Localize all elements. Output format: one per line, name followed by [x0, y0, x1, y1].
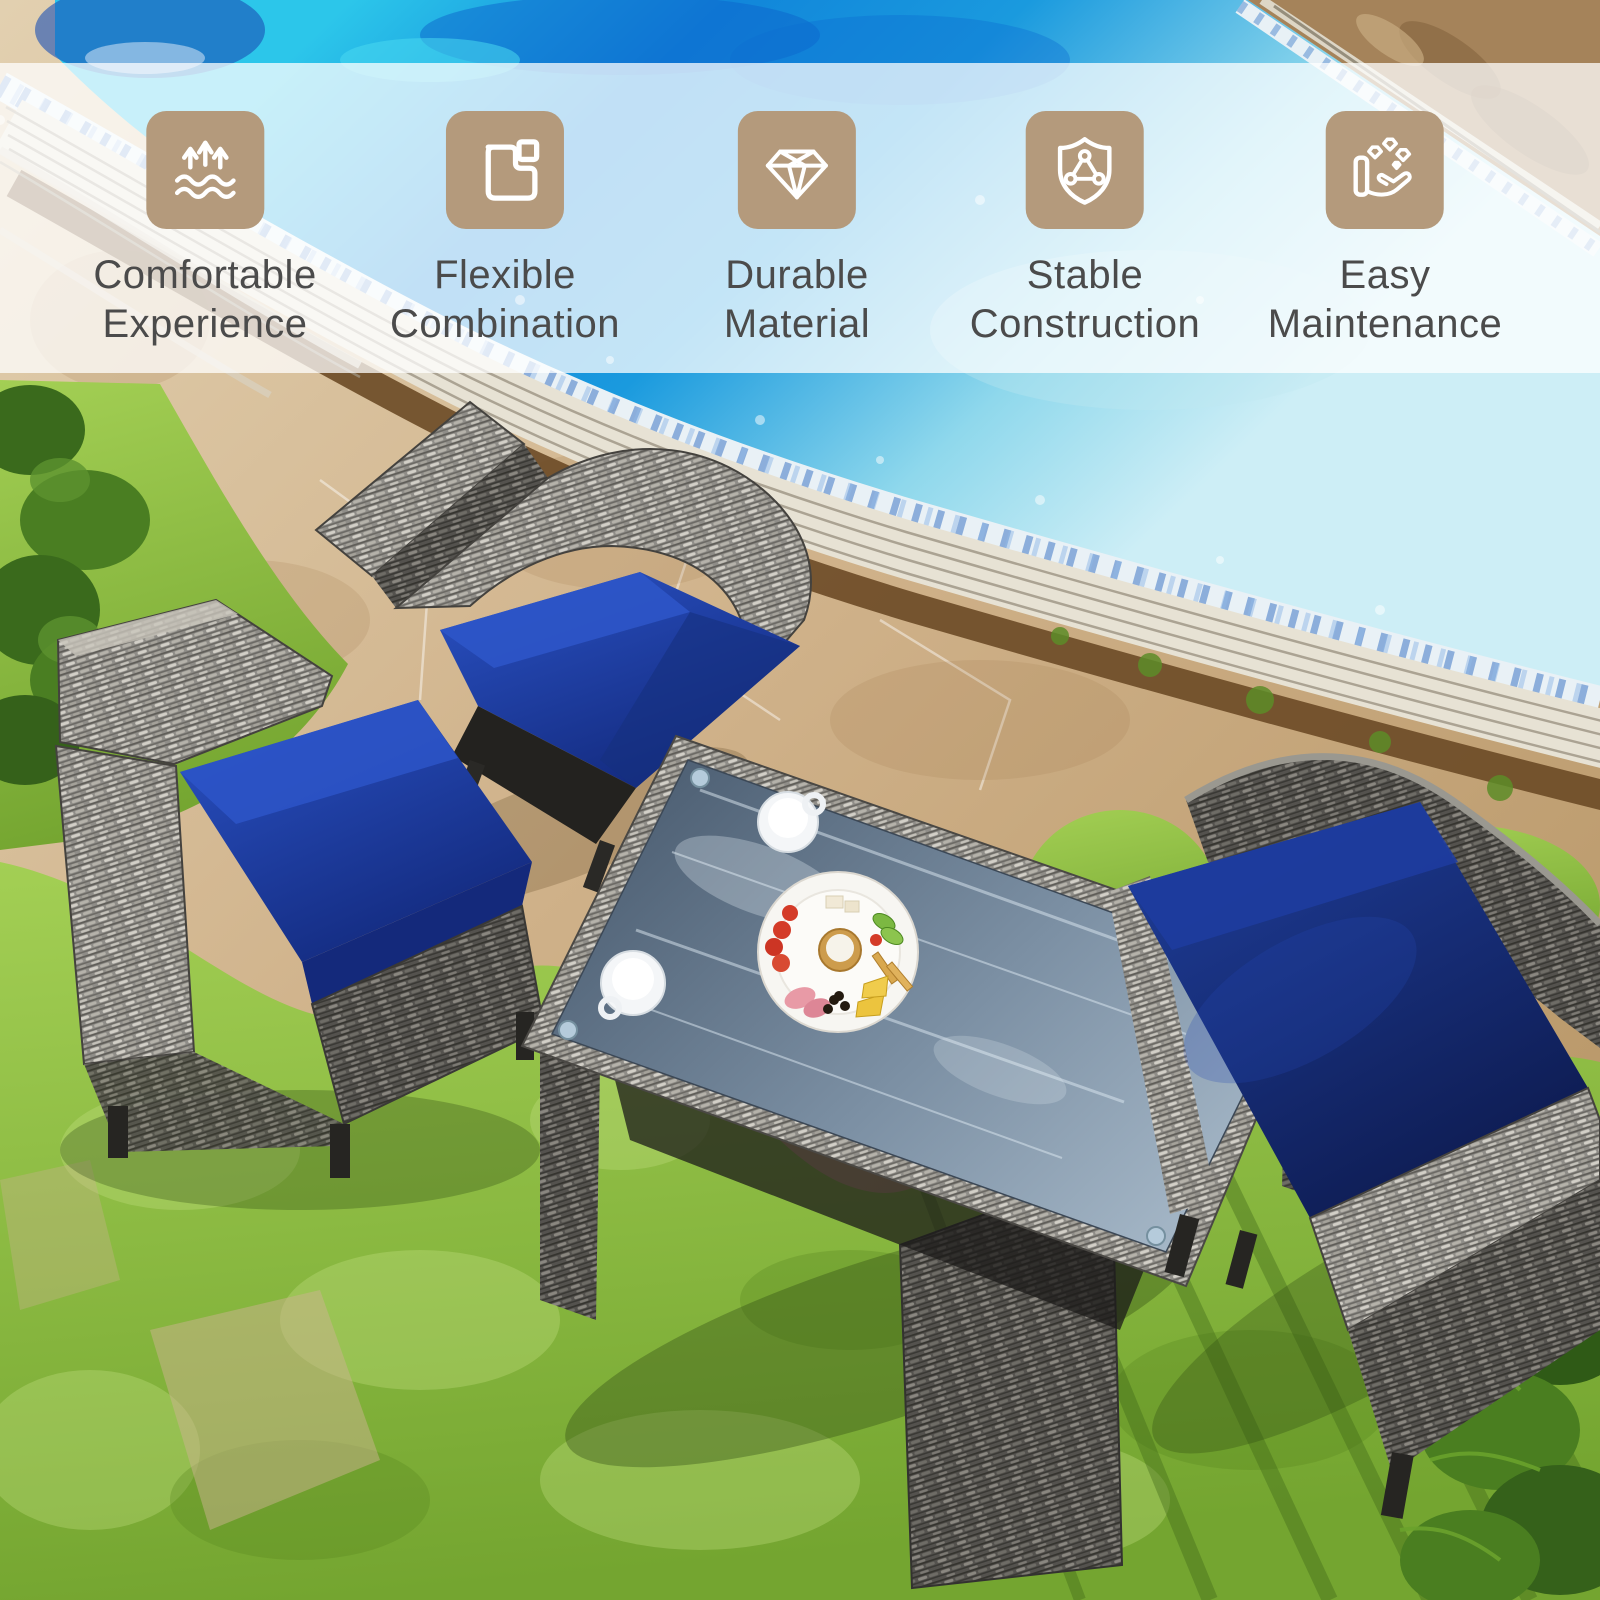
feature-durable-material: Durable Material	[724, 111, 870, 349]
feature-label-line2: Experience	[93, 300, 316, 349]
feature-icon-tile	[738, 111, 856, 229]
feature-label-line2: Combination	[390, 300, 620, 349]
modular-combination-icon	[461, 126, 549, 214]
feature-label-line1: Easy	[1268, 251, 1503, 300]
feature-flexible-combination: Flexible Combination	[390, 111, 620, 349]
feature-label: Easy Maintenance	[1268, 251, 1503, 349]
feature-label: Comfortable Experience	[93, 251, 316, 349]
feature-label-line1: Stable	[970, 251, 1201, 300]
breathable-waves-icon	[161, 126, 249, 214]
feature-label-line1: Flexible	[390, 251, 620, 300]
feature-stable-construction: Stable Construction	[970, 111, 1201, 349]
feature-easy-maintenance: Easy Maintenance	[1268, 111, 1503, 349]
feature-label: Stable Construction	[970, 251, 1201, 349]
feature-label-line2: Construction	[970, 300, 1201, 349]
feature-label-line2: Material	[724, 300, 870, 349]
feature-icon-tile	[146, 111, 264, 229]
feature-label-line1: Comfortable	[93, 251, 316, 300]
feature-label-line2: Maintenance	[1268, 300, 1503, 349]
shield-structure-icon	[1041, 126, 1129, 214]
feature-icon-tile	[446, 111, 564, 229]
food-plate	[758, 872, 918, 1032]
feature-icon-tile	[1326, 111, 1444, 229]
feature-label: Flexible Combination	[390, 251, 620, 349]
feature-label-line1: Durable	[724, 251, 870, 300]
feature-label: Durable Material	[724, 251, 870, 349]
feature-comfortable-experience: Comfortable Experience	[93, 111, 316, 349]
hand-care-icon	[1341, 126, 1429, 214]
feature-icon-tile	[1026, 111, 1144, 229]
product-marketing-image: Comfortable Experience Flexible Combinat…	[0, 0, 1600, 1600]
diamond-icon	[753, 126, 841, 214]
coffee-cup-left	[601, 951, 665, 1017]
